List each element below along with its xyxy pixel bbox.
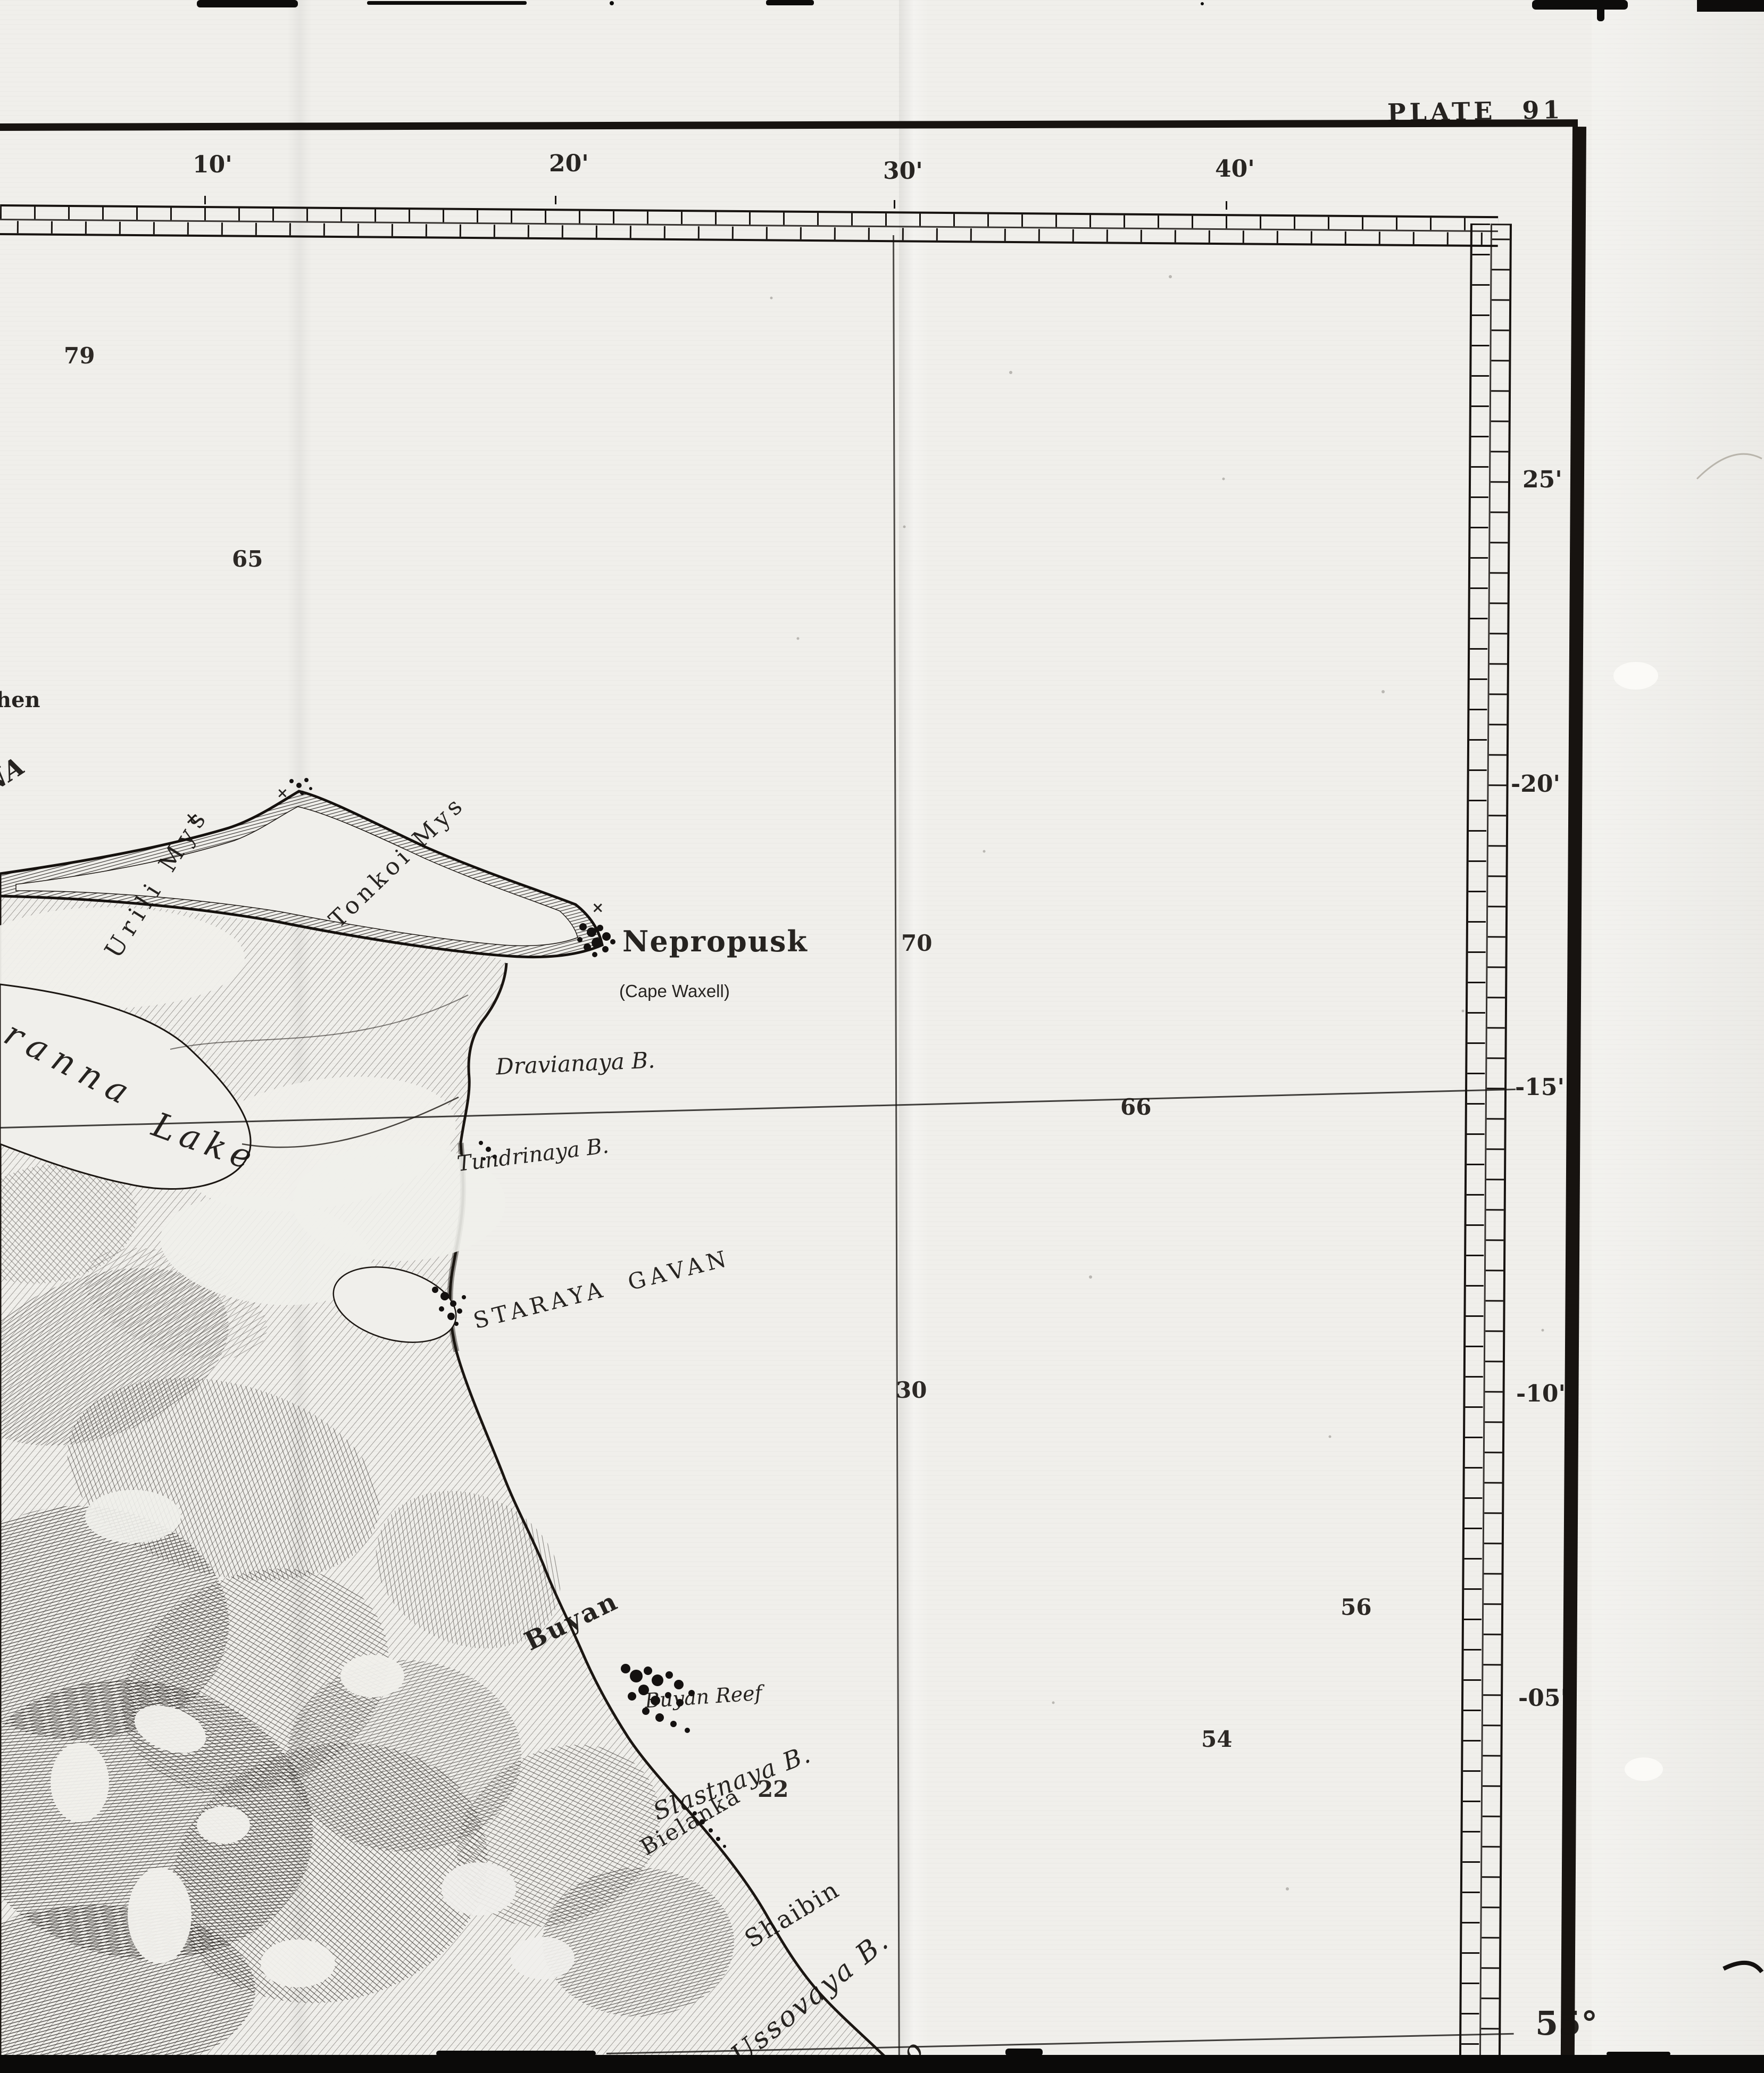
top-tick-label-40: 40' bbox=[1215, 157, 1255, 181]
right-tick-label-25: 25' bbox=[1522, 468, 1562, 492]
top-tick-label-20: 20' bbox=[549, 152, 589, 176]
right-tick-label-10: -10' bbox=[1516, 1382, 1566, 1406]
bottom-shadow-bump-1 bbox=[436, 2051, 596, 2056]
sounding-30: 30 bbox=[896, 1379, 927, 1402]
rock-x-mark-icon: × bbox=[592, 900, 604, 915]
sounding-79: 79 bbox=[64, 345, 95, 367]
place-label-hen-fragment: hen bbox=[0, 690, 40, 711]
sounding-66: 66 bbox=[1120, 1096, 1151, 1118]
tick-20min bbox=[555, 196, 556, 204]
top-tick-label-30: 30' bbox=[883, 160, 923, 183]
bottom-shadow-bump-3 bbox=[1607, 2052, 1670, 2056]
right-tick-label-05: -05' bbox=[1518, 1687, 1568, 1710]
top-tick-label-10: 10' bbox=[193, 153, 232, 177]
tick-40min bbox=[1226, 201, 1227, 210]
bottom-shadow-band bbox=[0, 2055, 1764, 2073]
sounding-70: 70 bbox=[901, 932, 932, 955]
plate-label: PLATE 91 bbox=[1387, 97, 1564, 125]
sounding-65: 65 bbox=[232, 548, 263, 570]
map-sheet: PLATE 91 10' 20' 30' 40' 25' -20' -15' -… bbox=[0, 0, 1764, 2073]
place-label-cape-waxell: (Cape Waxell) bbox=[619, 982, 730, 1000]
sounding-54: 54 bbox=[1201, 1728, 1232, 1751]
place-label-nepropusk: Nepropusk bbox=[622, 927, 808, 956]
tick-30min bbox=[894, 200, 895, 209]
tonkoi-rocks bbox=[289, 778, 312, 795]
sounding-56: 56 bbox=[1341, 1596, 1371, 1619]
tick-10min bbox=[204, 196, 206, 204]
rock-x-mark-icon: × bbox=[277, 786, 288, 800]
latitude-55-label: 55° bbox=[1535, 2007, 1597, 2040]
sea-speckles bbox=[770, 275, 1544, 1890]
right-tick-label-15: -15' bbox=[1515, 1076, 1565, 1099]
top-edge-marks bbox=[197, 0, 1764, 21]
margin-blemishes bbox=[1613, 454, 1762, 1972]
right-tick-label-20: -20' bbox=[1511, 773, 1560, 796]
place-label-dravianaya: Dravianaya B. bbox=[495, 1049, 655, 1078]
bottom-shadow-bump-2 bbox=[1005, 2049, 1043, 2056]
